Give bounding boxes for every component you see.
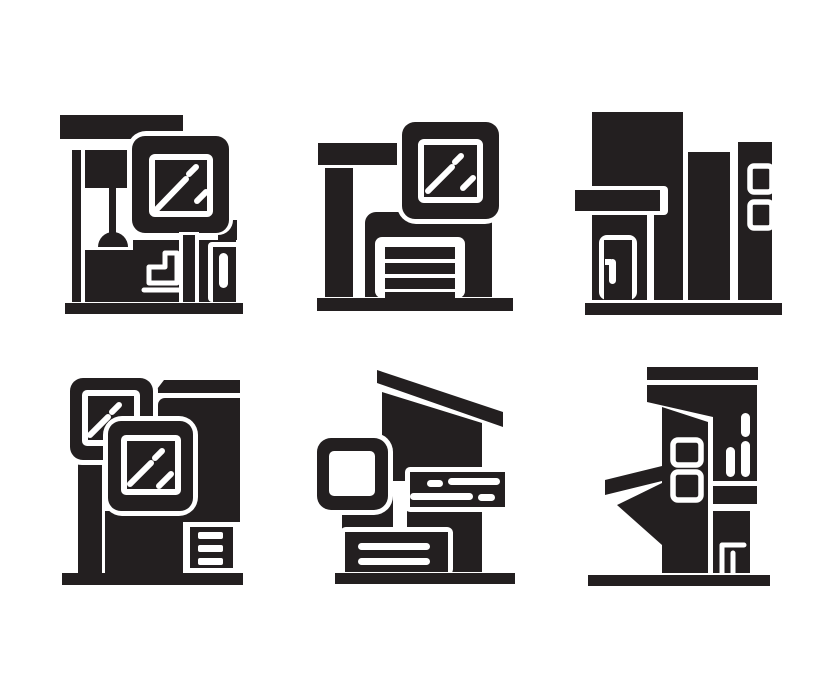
- ground-line: [588, 575, 770, 586]
- slanted-roof-house-glyph: [300, 355, 540, 595]
- garage-store-building-icon: [300, 90, 540, 330]
- modern-tower-building-icon: [570, 355, 810, 595]
- left-column: [78, 455, 102, 573]
- left-slab: [325, 168, 353, 297]
- garage-store-building-glyph: [300, 90, 540, 330]
- door-icon: [604, 240, 632, 300]
- roof-bar: [647, 367, 758, 380]
- middle-tower: [688, 152, 730, 300]
- base-box: [345, 532, 448, 572]
- canopy: [575, 190, 660, 211]
- modern-tower-building-glyph: [570, 355, 810, 595]
- sign-bar: [410, 472, 505, 507]
- roof-bar: [318, 143, 397, 165]
- ground-line: [62, 573, 243, 585]
- door-handle: [609, 259, 616, 284]
- wing-triangle: [617, 483, 662, 545]
- ground-line: [335, 573, 515, 584]
- city-buildings-glyph: [570, 90, 810, 330]
- interior-room-building-glyph: [40, 90, 280, 330]
- slanted-roof-house-icon: [300, 355, 540, 595]
- double-window-building-icon: [40, 355, 280, 595]
- left-pole: [72, 150, 81, 302]
- roof-band: [154, 380, 240, 393]
- ground-line: [317, 298, 513, 311]
- interior-room-building-icon: [40, 90, 280, 330]
- double-window-building-glyph: [40, 355, 280, 595]
- lamp-cord: [109, 188, 116, 234]
- ground-line: [65, 303, 243, 314]
- ground-line: [585, 303, 782, 315]
- icon-sheet: [0, 0, 840, 700]
- city-buildings-icon: [570, 90, 810, 330]
- window-stem: [183, 235, 195, 302]
